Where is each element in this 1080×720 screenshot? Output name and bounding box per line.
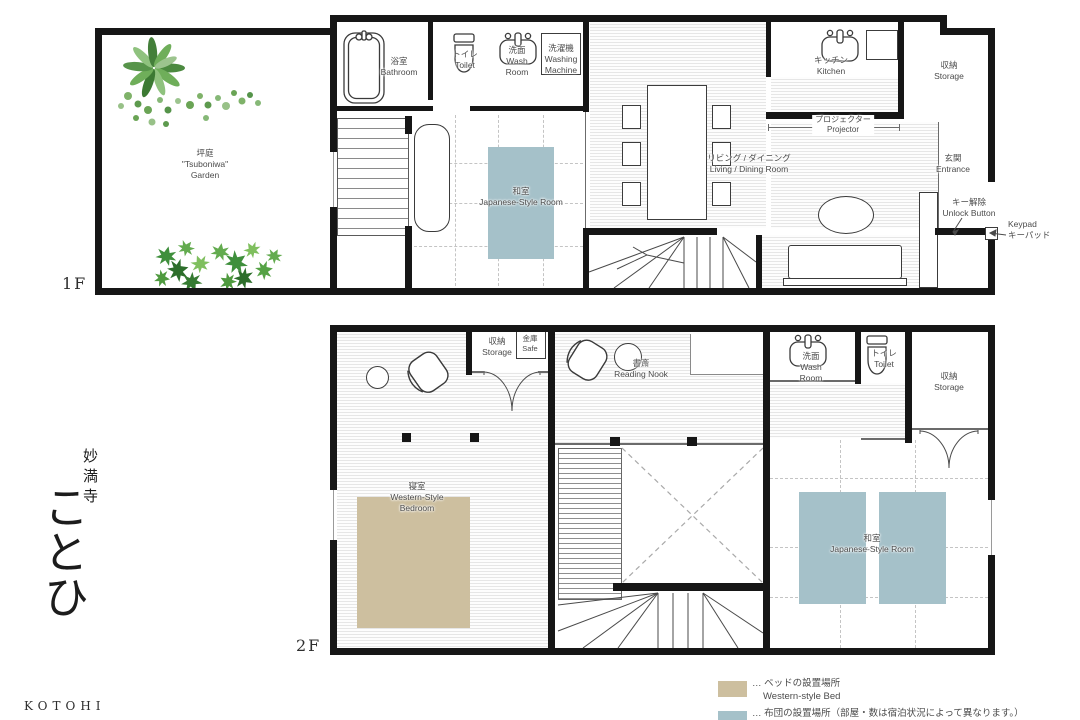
room-label-japanese-2f: 和室 Japanese-Style Room [830,533,914,555]
wall-segment [855,332,861,384]
room-label-toilet-2f: トイレ Toilet [871,348,897,370]
label-projector: プロジェクター Projector [812,115,874,136]
room-label-washroom-2f: 洗面 Wash Room [800,351,823,384]
room-boundary-line [585,110,586,228]
storage-line [912,428,989,430]
wall-segment [330,325,995,332]
wall-segment [405,226,412,288]
label-washing-machine: 洗濯機 Washing Machine [545,43,578,76]
wall-segment [583,15,589,112]
wall-segment [583,228,717,235]
logo-brand-calligraphy: ことひ [40,484,85,619]
wall-segment [330,648,995,655]
room-label-japanese-1f: 和室 Japanese-Style Room [479,186,563,208]
wall-segment [95,28,337,35]
wall-segment [898,15,904,117]
closet-1f [414,124,450,232]
wall-segment [95,288,995,295]
legend-futon: … 布団の設置場所（部屋・数は宿泊状況によって異なります。） [752,707,1024,720]
hall-floor-hatch [770,383,905,438]
closet-line [470,371,484,373]
stairs-2f-lower [558,593,763,648]
logo-roman: KOTOHI [24,699,106,713]
sofa-base [783,278,907,286]
wall-segment [330,15,947,22]
wall-segment [613,583,766,591]
stairs-2f-upper [558,448,622,600]
window-line [991,500,992,555]
tatami-grid-line [770,478,988,479]
window-line [333,152,334,207]
dining-chair [622,182,641,206]
wall-segment [940,28,995,35]
room-label-garden: 坪庭 "Tsuboniwa" Garden [182,148,228,181]
room-label-reading-nook: 書斎 Reading Nook [614,358,668,380]
wall-segment [95,28,102,295]
wall-segment [988,325,995,655]
dining-chair [622,105,641,129]
room-label-bedroom: 寝室 Western-Style Bedroom [390,481,443,514]
column-marker [610,437,620,446]
window-line [333,490,334,540]
nook-desk [690,334,764,375]
room-label-washroom-1f: 洗面 Wash Room [506,45,529,78]
wall-segment [337,106,433,111]
dining-chair [622,142,641,166]
wall-segment [466,325,472,375]
column-marker [470,433,479,442]
wall-segment [428,15,433,100]
wall-segment [548,325,555,655]
wall-segment [988,28,995,295]
dining-chair [712,105,731,129]
room-label-storage-2f: 収納 Storage [934,371,964,393]
label-safe: 金庫 Safe [522,334,537,354]
side-table [366,366,389,389]
tatami-grid-line [455,115,456,286]
column-marker [402,433,411,442]
projector-line-end [768,124,769,131]
stairs-1f-lower [589,237,756,288]
floor-plan-canvas: 妙満寺 ことひ KOTOHI 1F 坪庭 "Tsuboniwa" Garden [0,0,1080,720]
storage-door-arcs [918,430,980,470]
wall-segment [763,325,770,655]
room-label-storage-1f: 収納 Storage [934,60,964,82]
wall-segment [756,235,762,288]
floor1-label: 1F [62,274,87,293]
annotation-arrows [930,210,1050,250]
bathtub-icon [342,30,386,106]
hall-line [555,443,765,445]
legend-bed: … ベッドの設置場所 Western-style Bed [752,677,840,704]
stairs-1f [337,118,409,236]
garden-maple-leaves [148,236,288,296]
dining-table [647,85,707,220]
projector-line-end [899,124,900,131]
void-x [622,448,763,583]
room-label-entrance: 玄関 Entrance [936,153,970,175]
bed-area [357,497,470,628]
coffee-table [818,196,874,234]
room-label-toilet-1f: トイレ Toilet [452,49,478,71]
wall-segment [405,116,412,134]
legend-futon-swatch [718,711,747,720]
kitchen-floor-hatch [771,77,898,115]
room-label-closet-2f: 収納 Storage [482,336,512,358]
floor2-label: 2F [296,636,321,655]
sofa [788,245,902,279]
column-marker [687,437,697,446]
legend-bed-swatch [718,681,747,697]
wall-segment [470,106,585,111]
wall-segment [905,325,912,443]
closet-door-arcs [482,371,542,413]
room-label-bathroom: 浴室 Bathroom [381,56,418,78]
garden-foliage [106,38,276,143]
wall-segment [766,15,771,77]
dining-chair [712,182,731,206]
stove-icon [866,30,898,60]
wall-segment [583,235,589,288]
room-label-living: リビング / ダイニング Living / Dining Room [707,153,791,175]
toilet-line [861,438,906,440]
room-label-kitchen: キッチン Kitchen [814,55,848,77]
